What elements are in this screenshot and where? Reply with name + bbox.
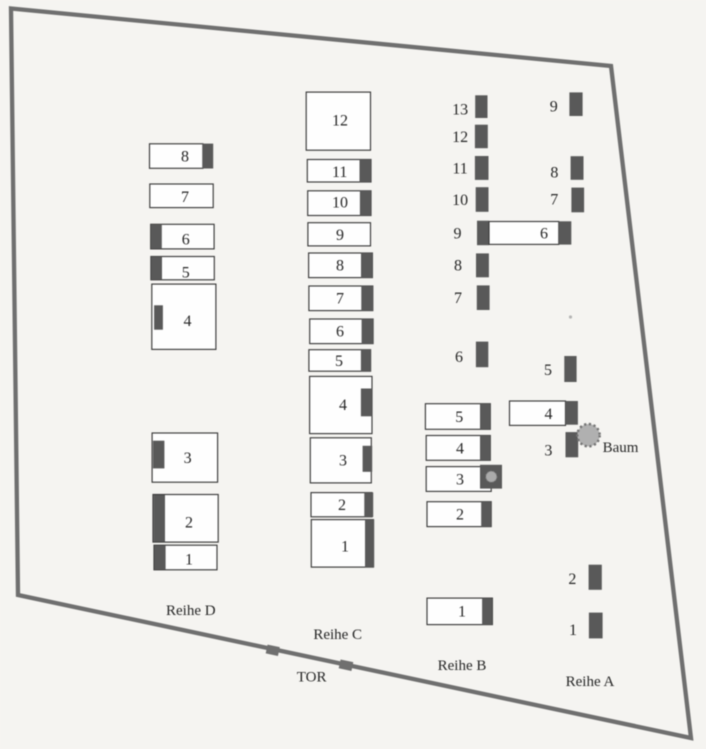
- svg-text:12: 12: [452, 129, 468, 146]
- svg-text:Baum: Baum: [603, 440, 639, 456]
- svg-text:5: 5: [455, 409, 463, 426]
- svg-text:1: 1: [185, 551, 193, 568]
- svg-text:4: 4: [456, 440, 464, 457]
- svg-text:Reihe B: Reihe B: [438, 658, 487, 674]
- svg-text:12: 12: [332, 113, 348, 130]
- svg-text:6: 6: [182, 231, 190, 248]
- svg-text:3: 3: [456, 471, 464, 488]
- svg-text:6: 6: [455, 349, 463, 366]
- svg-text:1: 1: [458, 604, 466, 621]
- svg-text:1: 1: [569, 622, 577, 639]
- svg-text:1: 1: [341, 539, 349, 556]
- svg-text:2: 2: [338, 497, 346, 514]
- svg-text:6: 6: [336, 324, 344, 341]
- svg-text:11: 11: [452, 160, 467, 177]
- svg-text:4: 4: [339, 397, 347, 414]
- svg-text:13: 13: [452, 102, 468, 119]
- svg-text:7: 7: [181, 189, 189, 206]
- svg-text:11: 11: [332, 164, 347, 181]
- svg-text:8: 8: [181, 149, 189, 166]
- svg-text:Reihe A: Reihe A: [566, 674, 615, 690]
- svg-text:2: 2: [456, 507, 464, 524]
- svg-text:9: 9: [336, 227, 344, 244]
- svg-text:5: 5: [544, 362, 552, 379]
- svg-text:3: 3: [544, 443, 552, 460]
- svg-text:10: 10: [332, 195, 348, 212]
- svg-text:8: 8: [454, 258, 462, 275]
- svg-text:Reihe C: Reihe C: [313, 627, 362, 643]
- svg-text:9: 9: [454, 225, 462, 242]
- svg-text:3: 3: [184, 450, 192, 467]
- svg-text:8: 8: [336, 258, 344, 275]
- svg-text:Reihe D: Reihe D: [166, 603, 216, 619]
- svg-text:2: 2: [568, 571, 576, 588]
- svg-text:9: 9: [550, 98, 558, 115]
- svg-text:10: 10: [452, 192, 468, 209]
- svg-text:7: 7: [336, 291, 344, 308]
- svg-text:3: 3: [339, 453, 347, 470]
- svg-text:7: 7: [550, 192, 558, 209]
- svg-text:6: 6: [540, 225, 548, 242]
- svg-text:TOR: TOR: [297, 670, 327, 686]
- svg-text:8: 8: [550, 165, 558, 182]
- svg-text:4: 4: [545, 406, 553, 423]
- svg-text:5: 5: [335, 353, 343, 370]
- svg-text:7: 7: [454, 290, 462, 307]
- svg-text:2: 2: [185, 514, 193, 531]
- svg-text:5: 5: [182, 265, 190, 282]
- svg-text:4: 4: [184, 313, 192, 330]
